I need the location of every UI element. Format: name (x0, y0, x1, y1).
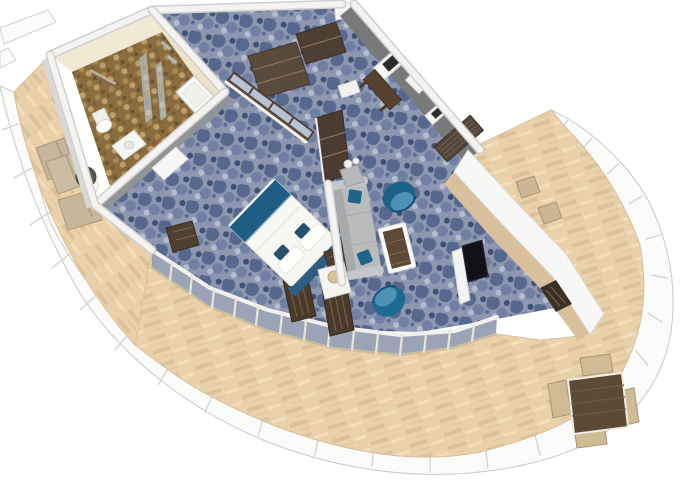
upper-deck-railing-segment (0, 10, 56, 44)
upper-deck-railing-segment-2 (0, 48, 16, 68)
sofa-pillow (347, 189, 362, 204)
suite-floorplan-rendering: Aft-facing cruise ship suite — 3D cutawa… (0, 0, 680, 486)
dining-chair (580, 354, 613, 376)
floorplan-figure: Aft-facing cruise ship suite — 3D cutawa… (0, 0, 680, 486)
